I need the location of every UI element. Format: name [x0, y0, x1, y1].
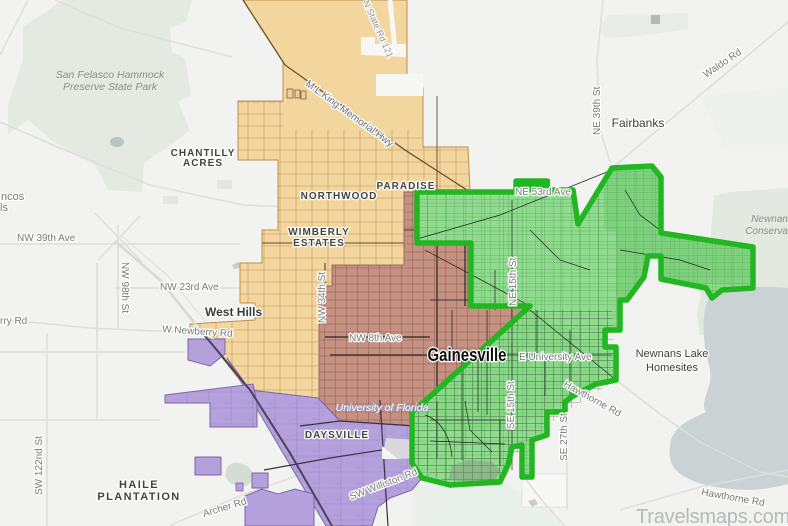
svg-text:NE 39th St: NE 39th St: [592, 86, 603, 135]
svg-text:NE 53rd Ave: NE 53rd Ave: [515, 187, 571, 198]
svg-text:University of Florida: University of Florida: [336, 402, 429, 414]
svg-text:rry Rd: rry Rd: [0, 316, 27, 327]
svg-text:West Hills: West Hills: [205, 305, 262, 319]
svg-text:Travelsmaps.com: Travelsmaps.com: [636, 506, 788, 526]
svg-text:ls: ls: [0, 202, 8, 214]
svg-text:Newnan: Newnan: [751, 214, 788, 225]
svg-text:SE 27th St: SE 27th St: [559, 413, 570, 461]
svg-text:Gainesville: Gainesville: [428, 345, 507, 365]
svg-text:DAYSVILLE: DAYSVILLE: [305, 430, 369, 441]
svg-text:ACRES: ACRES: [183, 158, 223, 169]
svg-text:HAILE: HAILE: [119, 479, 159, 491]
svg-text:NORTHWOOD: NORTHWOOD: [301, 191, 378, 202]
svg-text:ESTATES: ESTATES: [293, 238, 345, 249]
svg-text:Newnans Lake: Newnans Lake: [636, 348, 709, 360]
svg-text:PLANTATION: PLANTATION: [97, 491, 180, 503]
svg-text:NW 39th Ave: NW 39th Ave: [17, 233, 76, 244]
svg-text:NW 8th Ave: NW 8th Ave: [349, 333, 402, 344]
svg-text:NE 15th St: NE 15th St: [508, 257, 519, 306]
svg-text:NW 23rd Ave: NW 23rd Ave: [160, 282, 219, 293]
svg-text:Preserve State Park: Preserve State Park: [63, 81, 158, 93]
svg-text:Homesites: Homesites: [646, 362, 698, 374]
svg-text:WIMBERLY: WIMBERLY: [288, 227, 350, 238]
svg-text:SE 15th St: SE 15th St: [506, 381, 517, 429]
svg-text:PARADISE: PARADISE: [377, 181, 436, 192]
svg-text:NW 34th St: NW 34th St: [317, 272, 328, 323]
svg-text:E University Ave: E University Ave: [519, 352, 592, 363]
svg-text:Fairbanks: Fairbanks: [612, 116, 665, 130]
svg-text:NW 98th St: NW 98th St: [119, 262, 130, 313]
svg-text:San Felasco Hammock: San Felasco Hammock: [56, 69, 165, 81]
svg-text:SW 122nd St: SW 122nd St: [34, 436, 45, 495]
svg-text:Conserva: Conserva: [745, 226, 788, 237]
